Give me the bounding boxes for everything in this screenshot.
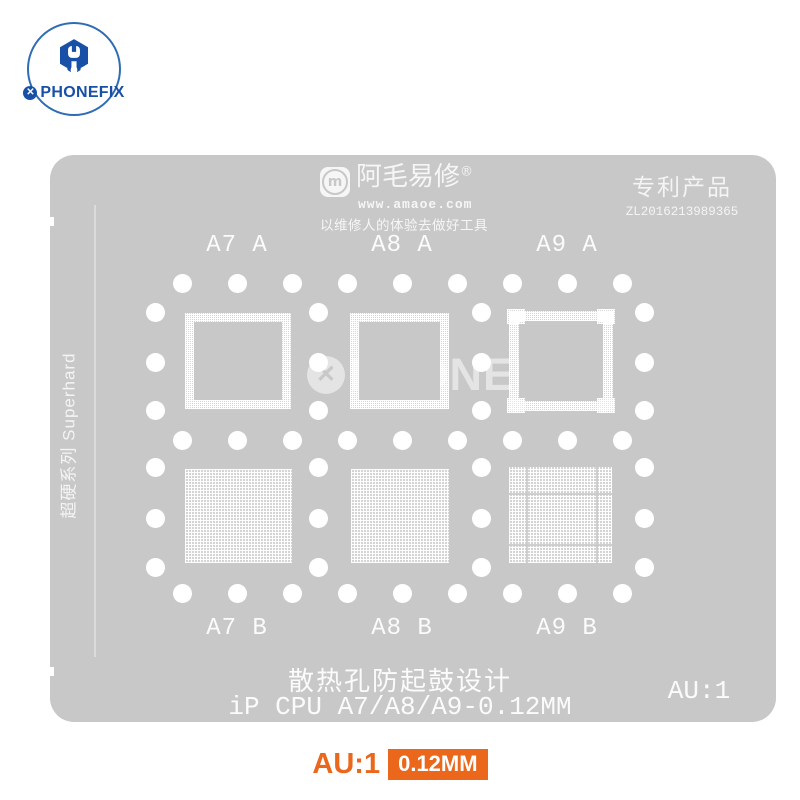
alignment-hole <box>503 274 522 293</box>
alignment-hole <box>283 584 302 603</box>
alignment-hole <box>146 353 165 372</box>
alignment-hole <box>173 274 192 293</box>
alignment-hole <box>613 274 632 293</box>
alignment-hole <box>613 584 632 603</box>
alignment-hole <box>503 431 522 450</box>
series-label-vertical: 超硬系列 Superhard <box>55 326 80 546</box>
patent-title: 专利产品 <box>624 168 740 202</box>
group-label-a9a: A9 A <box>507 232 627 259</box>
alignment-hole <box>635 509 654 528</box>
group-label-a9b: A9 B <box>507 615 627 642</box>
patent-block: 专利产品 ZL2016213989365 <box>624 168 740 219</box>
maker-name: 阿毛易修® <box>356 163 473 192</box>
alignment-hole <box>448 584 467 603</box>
bga-pattern-a8a <box>350 313 449 409</box>
alignment-hole <box>635 558 654 577</box>
alignment-hole <box>283 431 302 450</box>
maker-website: www.amaoe.com <box>358 197 488 212</box>
alignment-hole <box>503 584 522 603</box>
alignment-hole <box>309 303 328 322</box>
bga-pattern-a9b <box>509 467 612 563</box>
alignment-hole <box>472 558 491 577</box>
alignment-hole <box>309 558 328 577</box>
alignment-hole <box>472 401 491 420</box>
maker-block: m 阿毛易修® www.amaoe.com 以维修人的体验去做好工具 <box>320 163 488 234</box>
alignment-hole <box>173 431 192 450</box>
alignment-hole <box>338 431 357 450</box>
alignment-hole <box>146 303 165 322</box>
alignment-hole <box>146 558 165 577</box>
alignment-hole <box>635 353 654 372</box>
caption-row: AU:1 0.12MM <box>0 748 800 781</box>
group-label-a7a: A7 A <box>177 232 297 259</box>
alignment-hole <box>146 458 165 477</box>
model-text: iP CPU A7/A8/A9-0.12MM <box>150 692 650 722</box>
circle-x-icon: ✕ <box>23 86 37 100</box>
alignment-hole <box>393 431 412 450</box>
alignment-hole <box>228 584 247 603</box>
amaoe-logo-icon: m <box>320 167 350 197</box>
alignment-hole <box>146 401 165 420</box>
alignment-hole <box>309 509 328 528</box>
bga-pattern-a9a <box>509 311 613 411</box>
alignment-hole <box>558 431 577 450</box>
maker-slogan: 以维修人的体验去做好工具 <box>320 214 488 234</box>
bga-stencil-plate: m 阿毛易修® www.amaoe.com 以维修人的体验去做好工具 专利产品 … <box>50 155 776 722</box>
patent-number: ZL2016213989365 <box>624 205 740 219</box>
alignment-hole <box>635 458 654 477</box>
alignment-hole <box>146 509 165 528</box>
alignment-hole <box>472 509 491 528</box>
alignment-hole <box>309 401 328 420</box>
caption-thickness-badge: 0.12MM <box>388 749 487 780</box>
film-crease-line <box>94 205 96 657</box>
alignment-hole <box>635 303 654 322</box>
alignment-hole <box>228 431 247 450</box>
bga-pattern-a7a <box>185 313 291 409</box>
alignment-hole <box>448 274 467 293</box>
alignment-hole <box>472 458 491 477</box>
alignment-hole <box>635 401 654 420</box>
group-label-a8b: A8 B <box>342 615 462 642</box>
alignment-hole <box>338 274 357 293</box>
phonefix-logo: ✕ PHONEFIX <box>27 22 121 116</box>
registered-mark: ® <box>460 164 473 179</box>
bga-pattern-a7b <box>185 469 292 563</box>
group-label-a7b: A7 B <box>177 615 297 642</box>
alignment-hole <box>173 584 192 603</box>
gold-ratio-text: AU:1 <box>644 676 754 706</box>
brand-name: PHONEFIX <box>40 84 124 102</box>
alignment-hole <box>283 274 302 293</box>
alignment-hole <box>309 458 328 477</box>
product-photo: ✕ PHONEFIX m 阿毛易修® www.amaoe.com 以维修人的体验… <box>0 0 800 800</box>
alignment-hole <box>558 584 577 603</box>
edge-notch <box>50 667 54 676</box>
group-label-a8a: A8 A <box>342 232 462 259</box>
caption-gold-ratio: AU:1 <box>312 748 380 781</box>
alignment-hole <box>228 274 247 293</box>
alignment-hole <box>472 303 491 322</box>
alignment-hole <box>613 431 632 450</box>
edge-notch <box>50 217 54 226</box>
alignment-hole <box>309 353 328 372</box>
alignment-hole <box>472 353 491 372</box>
alignment-hole <box>558 274 577 293</box>
alignment-hole <box>448 431 467 450</box>
alignment-hole <box>338 584 357 603</box>
alignment-hole <box>393 584 412 603</box>
bga-pattern-a8b <box>351 469 449 563</box>
alignment-hole <box>393 274 412 293</box>
hex-wrench-icon <box>57 38 91 81</box>
